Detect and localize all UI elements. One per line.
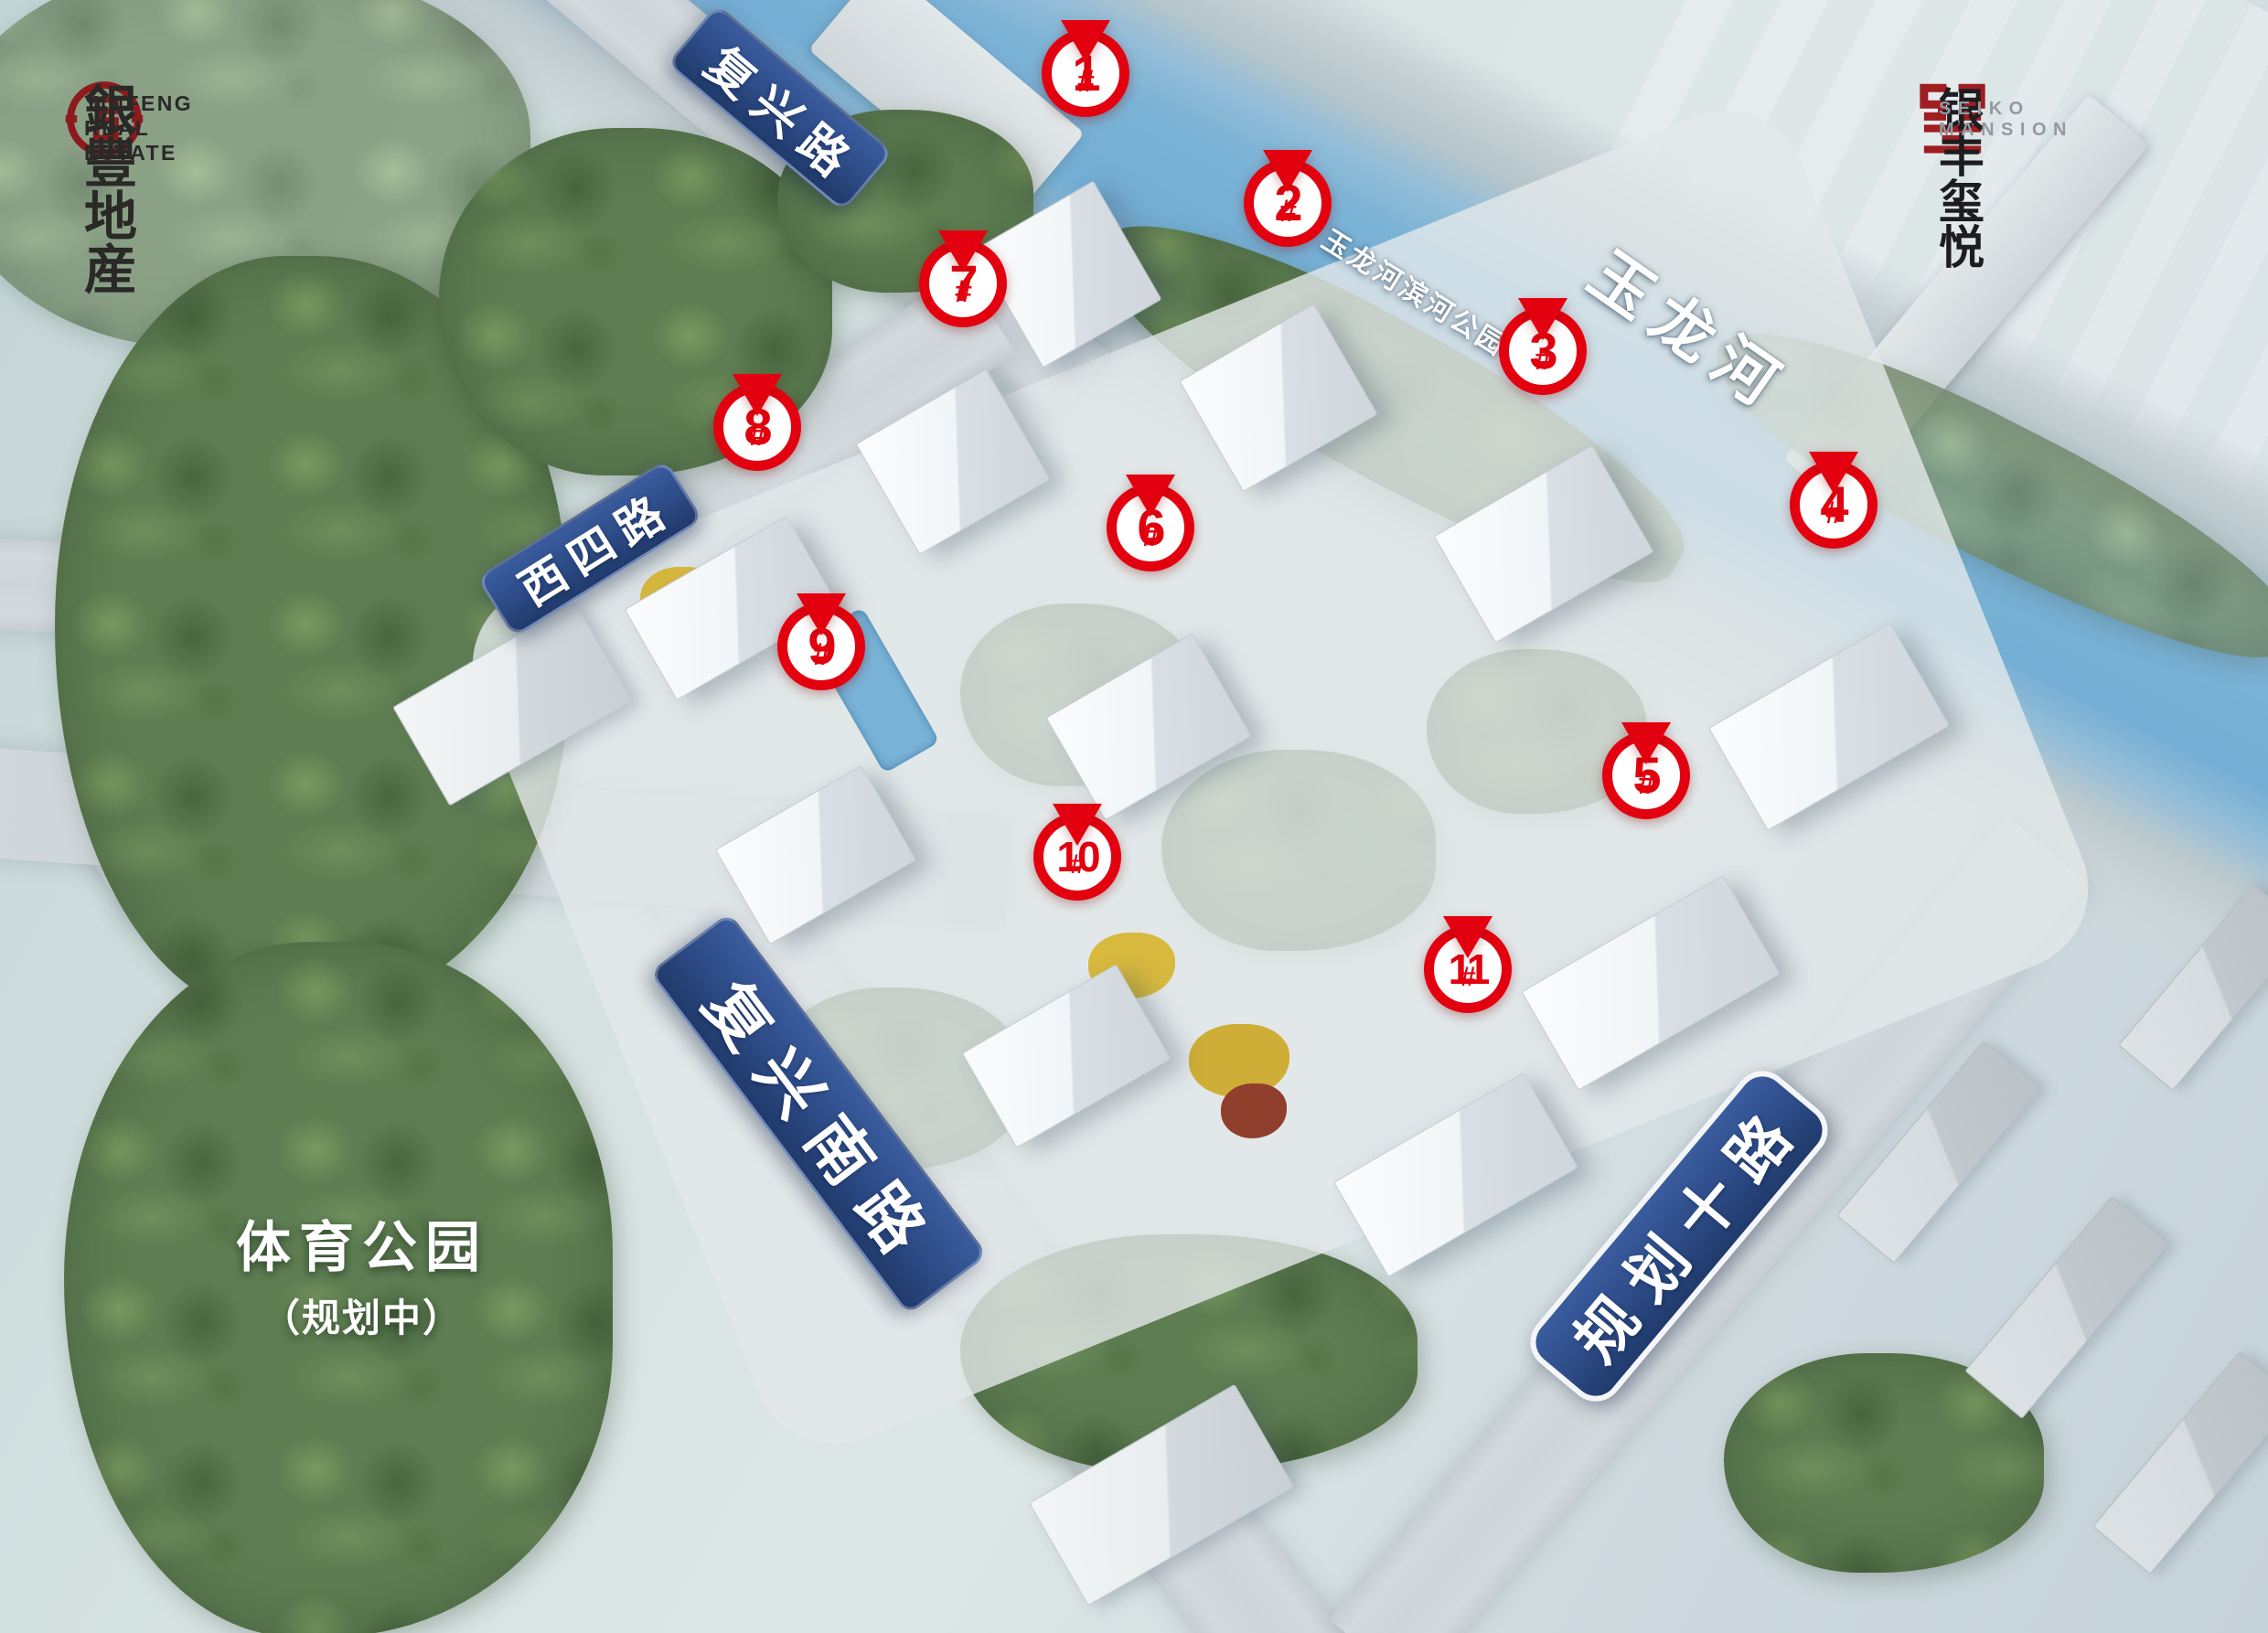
hash-symbol: # <box>749 420 766 451</box>
sports-park-label: 体育公园 <box>236 1203 488 1283</box>
sports-park-status: （规划中） <box>262 1287 463 1343</box>
developer-name-en: YINFENG REAL ESTATE <box>84 91 193 165</box>
hash-symbol: # <box>1638 768 1655 799</box>
hash-symbol: # <box>1142 520 1160 551</box>
marker-tail <box>1809 452 1858 494</box>
marker-tail <box>1126 475 1175 517</box>
hash-symbol: # <box>1460 964 1476 991</box>
developer-logo: 銀豐地産 YINFENG REAL ESTATE <box>64 79 144 159</box>
urban-block-c <box>2092 1351 2268 1574</box>
site-aerial-view: 玉龙河 玉龙河滨河公园 体育公园 （规划中） 复兴路 西四路 复兴南路 规划十路… <box>0 0 2268 1633</box>
marker-tail <box>1518 298 1567 340</box>
marker-tail <box>1053 804 1102 846</box>
hash-symbol: # <box>1535 344 1552 375</box>
project-name-en: SEIKO MANSION <box>1939 99 2073 141</box>
project-logo: 银丰玺悦 SEIKO MANSION <box>1915 80 1990 155</box>
marker-tail <box>1061 20 1110 62</box>
hash-symbol: # <box>1279 196 1297 227</box>
marker-tail <box>1443 916 1492 958</box>
hash-symbol: # <box>813 639 830 670</box>
hash-symbol: # <box>1825 497 1843 528</box>
marker-tail <box>797 593 846 635</box>
marker-tail <box>1621 722 1671 764</box>
hash-symbol: # <box>1070 851 1086 879</box>
hash-symbol: # <box>955 276 972 307</box>
marker-tail <box>938 230 988 272</box>
marker-tail <box>1263 150 1312 192</box>
urban-block-b <box>1964 1196 2169 1419</box>
marker-tail <box>733 374 782 416</box>
hash-symbol: # <box>1077 66 1095 97</box>
